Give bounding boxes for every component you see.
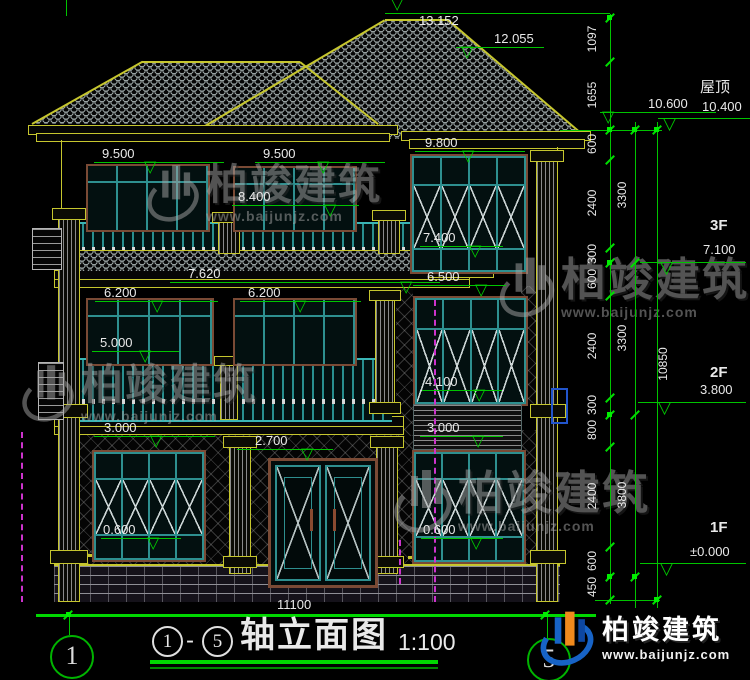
title-axis-end: 5	[213, 631, 223, 652]
elevation-marker-0600-left: 0.600	[101, 522, 181, 539]
door-handle	[333, 509, 336, 531]
elevation-value: 0.600	[103, 522, 136, 537]
elevation-triangle-icon	[461, 46, 473, 58]
cad-elevation-drawing: 13.152 12.055 9.500 9.500 8.400 9.800 7.…	[0, 0, 750, 680]
dim-node	[607, 260, 612, 265]
window-pane	[96, 454, 121, 478]
watermark-logo-icon	[498, 250, 556, 326]
elevation-triangle-icon	[475, 284, 487, 296]
elevation-marker-6200-center: 6.200	[240, 285, 361, 302]
elevation-triangle-icon	[150, 435, 162, 447]
dim-node	[66, 612, 71, 617]
floor-elev-2f: 3.800	[700, 383, 733, 397]
elevation-triangle-icon	[151, 300, 163, 312]
axis-dashed-line	[434, 300, 436, 602]
window-pane	[150, 454, 175, 478]
dim-text: 600	[585, 114, 599, 174]
axis-dashed-line	[21, 432, 23, 602]
elevation-marker-2700: 2.700	[237, 433, 333, 450]
brand-logo: 柏竣建筑 www.baijunjz.com	[538, 606, 730, 672]
window-pane	[177, 536, 202, 558]
title-axis-start: 1	[163, 631, 173, 652]
floor-elev-roof: 10.400	[702, 100, 742, 114]
elevation-value: 10.600	[648, 96, 688, 111]
ground-width-dim: 11100	[277, 598, 311, 612]
elevation-value: 9.800	[425, 135, 458, 150]
elevation-triangle-icon	[144, 161, 156, 173]
dim-text: 3300	[615, 165, 629, 225]
elevation-value: 7.400	[423, 230, 456, 245]
dim-line	[232, 205, 359, 206]
dim-text-overall: 10850	[656, 334, 670, 394]
elevation-marker-0600-right: 0.600	[421, 522, 503, 539]
left-eave-fascia-2	[36, 133, 390, 142]
dim-text: 600	[585, 249, 599, 309]
elevation-value: 5.000	[100, 335, 133, 350]
window-pane	[444, 300, 469, 328]
dim-node	[632, 127, 637, 132]
elevation-marker-10600: 10.600	[600, 96, 716, 113]
pilaster-cap	[370, 436, 404, 448]
dim-line	[94, 162, 224, 163]
elevation-triangle-icon	[472, 435, 484, 447]
window-pane	[472, 300, 497, 328]
dim-node	[607, 574, 612, 579]
dim-line	[92, 351, 179, 352]
dim-text: 800	[585, 400, 599, 460]
dim-text: 3800	[615, 465, 629, 525]
elevation-marker-3000-right: 3.000	[420, 420, 503, 437]
pilaster-cap	[530, 550, 566, 564]
elevation-value: 3.000	[427, 420, 460, 435]
dim-line	[421, 538, 503, 539]
axis-leader	[69, 617, 70, 635]
dim-line	[422, 390, 502, 391]
watermark-url: www.baijunjz.com	[206, 208, 382, 224]
door-leaf-left	[275, 465, 321, 581]
elevation-marker-ridge2: 12.055	[456, 31, 544, 48]
elevation-value: 6.500	[427, 269, 460, 284]
dim-line	[600, 112, 716, 113]
dim-text: 2400	[585, 316, 599, 376]
elevation-value: 7.620	[188, 266, 221, 281]
brand-logo-url: www.baijunjz.com	[602, 647, 730, 662]
elevation-marker-6500: 6.500	[413, 269, 506, 286]
watermark-logo-icon	[20, 358, 76, 430]
elevation-triangle-icon	[317, 161, 329, 173]
dim-node	[654, 597, 659, 602]
floor-label-2f: 2F	[710, 365, 728, 381]
window-pane	[96, 536, 121, 558]
dim-line	[385, 13, 610, 14]
pilaster-base	[223, 556, 257, 568]
door-leaf-right	[325, 465, 371, 581]
dim-line	[101, 538, 181, 539]
elevation-value: 6.200	[104, 285, 137, 300]
elevation-marker-9800: 9.800	[415, 135, 525, 152]
floor-elev-3f: 7.100	[703, 243, 736, 257]
drawing-title: 轴立面图	[240, 618, 388, 655]
elevation-value: 13.152	[419, 13, 459, 28]
brand-logo-text: 柏竣建筑	[602, 617, 730, 644]
window-pane	[498, 158, 524, 184]
pilaster-cap	[52, 208, 86, 220]
elevation-triangle-icon	[660, 262, 673, 275]
axis-dashed-line	[399, 540, 401, 584]
window-pane	[417, 330, 442, 402]
dim-line	[640, 563, 746, 564]
elevation-triangle-icon	[391, 0, 403, 10]
pilaster-2f-right	[375, 292, 395, 414]
dim-line	[420, 246, 503, 247]
elevation-value: 12.055	[494, 31, 534, 46]
dim-node	[632, 574, 637, 579]
title-underline-thick	[150, 660, 438, 664]
window-pane	[444, 330, 469, 402]
entry-door-1f	[268, 458, 378, 588]
pilaster-cap	[369, 290, 401, 301]
pilaster-1f-door-left	[229, 440, 251, 574]
window-pane	[123, 536, 148, 558]
floor-elev-1f: ±0.000	[690, 545, 730, 559]
elevation-value: 4.100	[425, 374, 458, 389]
dim-line	[420, 436, 503, 437]
dim-line	[640, 262, 746, 263]
pilaster-cap	[50, 550, 88, 564]
dim-line	[237, 449, 333, 450]
floor-label-1f: 1F	[710, 520, 728, 536]
ext-line-base	[595, 600, 660, 601]
dim-text: 2400	[585, 466, 599, 526]
elevation-value: 2.700	[255, 433, 288, 448]
elevation-triangle-icon	[400, 281, 412, 293]
elevation-triangle-icon	[469, 245, 481, 257]
dim-line	[638, 402, 746, 403]
elevation-value: 6.200	[248, 285, 281, 300]
dim-node	[654, 127, 659, 132]
title-underline-thin	[150, 667, 438, 669]
elevation-marker-9500-center: 9.500	[255, 146, 385, 163]
window-pane	[177, 454, 202, 478]
elevation-value: 9.500	[102, 146, 135, 161]
brand-logo-icon	[538, 606, 596, 672]
title-dash: -	[186, 628, 194, 653]
window-pane	[442, 250, 468, 270]
elevation-triangle-icon	[660, 563, 673, 576]
elevation-value: 8.400	[238, 189, 271, 204]
floor-label-roof: 屋顶	[700, 80, 730, 96]
title-axis-start-bubble: 1	[152, 626, 183, 657]
elevation-triangle-icon	[324, 204, 336, 216]
elevation-value: 9.500	[263, 146, 296, 161]
ref-line-top-left	[66, 0, 67, 16]
window-pane	[417, 300, 442, 328]
elevation-triangle-icon	[294, 300, 306, 312]
axis-bubble-1: 1	[50, 635, 94, 679]
dim-node	[607, 412, 612, 417]
detail-box	[551, 388, 568, 424]
elevation-marker-9500-left: 9.500	[94, 146, 224, 163]
pilaster-base	[369, 402, 401, 414]
elevation-triangle-icon	[658, 402, 671, 415]
door-handle	[310, 509, 313, 531]
elevation-value: 0.600	[423, 522, 456, 537]
axis-number: 1	[66, 641, 79, 670]
elevation-marker-ridge: 13.152	[385, 0, 610, 14]
side-rail-3f	[32, 228, 62, 270]
dim-node	[607, 15, 612, 20]
elevation-marker-5000: 5.000	[92, 335, 179, 352]
elevation-triangle-icon	[663, 118, 676, 131]
elevation-marker-8400: 8.400	[232, 189, 359, 206]
elevation-triangle-icon	[301, 448, 313, 460]
dim-column-floor	[635, 122, 636, 608]
watermark-brand: 柏竣建筑	[81, 364, 257, 406]
elevation-marker-4100: 4.100	[422, 374, 502, 391]
elevation-triangle-icon	[462, 150, 474, 162]
window-pane	[414, 158, 440, 184]
elevation-triangle-icon	[470, 537, 482, 549]
dim-node	[607, 127, 612, 132]
elevation-triangle-icon	[139, 350, 151, 362]
dim-line	[413, 285, 506, 286]
elevation-marker-7400: 7.400	[420, 230, 503, 247]
floor-label-3f: 3F	[710, 218, 728, 234]
elevation-triangle-icon	[473, 389, 485, 401]
window-pane	[123, 454, 148, 478]
elevation-triangle-icon	[147, 537, 159, 549]
elevation-marker-3000-left: 3.000	[94, 420, 215, 437]
pilaster-cap	[530, 150, 564, 162]
elevation-triangle-icon	[602, 111, 614, 123]
scale-label: 1:100	[398, 630, 456, 654]
dim-text: 1097	[585, 9, 599, 69]
window-pane	[499, 330, 524, 402]
elevation-marker-7620: 7.620	[170, 266, 440, 283]
title-axis-end-bubble: 5	[202, 626, 233, 657]
elevation-value: 3.000	[104, 420, 137, 435]
dim-text: 3300	[615, 308, 629, 368]
left-roof-ridge-line	[142, 61, 300, 63]
elevation-marker-6200-left: 6.200	[95, 285, 218, 302]
